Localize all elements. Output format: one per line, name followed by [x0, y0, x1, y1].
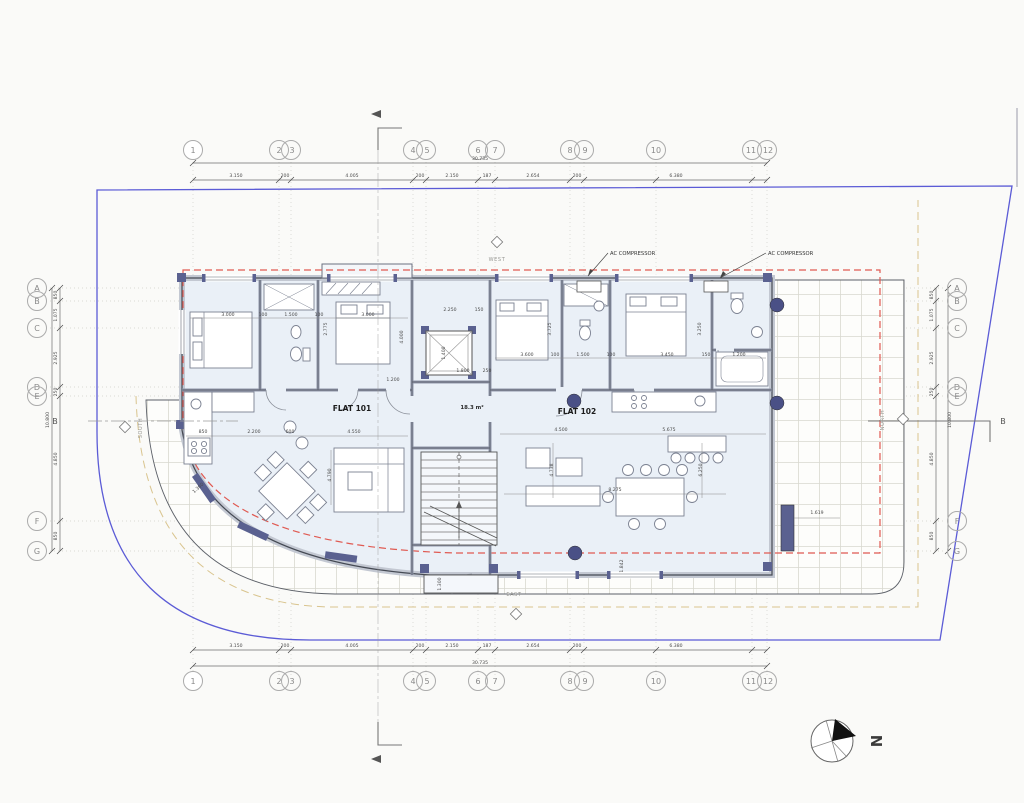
ac-compressor-unit — [704, 281, 728, 292]
dimension-value: 6.380 — [669, 173, 682, 179]
dimension-value: 3.600 — [520, 352, 533, 358]
dimension-value: 3.000 — [361, 312, 374, 318]
sofa — [334, 448, 404, 512]
dimension-value: 1.200 — [732, 352, 745, 358]
bed — [190, 312, 252, 368]
dimension-value: 100 — [259, 312, 268, 318]
grid-bubble-label: 11 — [746, 146, 756, 155]
bar-stool — [713, 453, 723, 463]
dimension-value: 5.675 — [662, 427, 675, 433]
dimension-value: 200 — [573, 643, 582, 649]
grid-bubble-label: 10 — [651, 677, 661, 686]
ac-compressor-callout: AC COMPRESSOR — [610, 251, 656, 257]
dimension-value: 2.925 — [53, 351, 59, 364]
grid-bubble: 1 — [184, 672, 203, 691]
grid-bubble-label: 2 — [276, 146, 281, 155]
dimension-value: 3.250 — [697, 322, 703, 335]
ac-compressor-callout: AC COMPRESSOR — [768, 251, 814, 257]
dimension-value: 2.250 — [443, 307, 456, 313]
dining-chair — [677, 465, 688, 476]
dimension-value: 3.150 — [229, 173, 242, 179]
dimension-value: 4.550 — [347, 429, 360, 435]
dimension-value: 4.738 — [549, 463, 555, 476]
dimension-value: 250 — [53, 388, 59, 397]
ac-compressor-unit — [577, 281, 601, 292]
dimension-value: 4.850 — [53, 452, 59, 465]
bar-stool — [685, 453, 695, 463]
kitchen-counter — [612, 392, 716, 412]
dining-chair — [641, 465, 652, 476]
dimension-value: 200 — [416, 643, 425, 649]
closet — [322, 282, 380, 295]
dimension-value: 200 — [573, 173, 582, 179]
dimension-value: 850 — [929, 291, 935, 300]
dimension-value: 4.500 — [554, 427, 567, 433]
grid-bubble-label: F — [35, 517, 40, 526]
grid-bubble-label: 4 — [410, 146, 415, 155]
north-label: NORTH — [880, 410, 886, 431]
dimension-value: 4.005 — [345, 643, 358, 649]
kitchen-sink — [191, 399, 201, 409]
grid-bubble-label: B — [34, 297, 40, 306]
dimension-value: 8.275 — [608, 487, 621, 493]
dimension-value: 6.380 — [669, 643, 682, 649]
grid-bubble-label: 3 — [289, 677, 294, 686]
dimension-value: 4.000 — [399, 330, 405, 343]
dining-chair — [623, 465, 634, 476]
deck-wall-stub — [781, 505, 794, 551]
dining-chair — [603, 492, 614, 503]
dimension-value: 1.075 — [929, 308, 935, 321]
dining-chair — [687, 492, 698, 503]
dimension-value: 2.150 — [445, 643, 458, 649]
south-label: SOUTH — [138, 418, 144, 439]
grid-bubble-label: D — [34, 383, 40, 392]
dimension-value: 200 — [281, 643, 290, 649]
grid-bubble-label: 8 — [567, 677, 572, 686]
dimension-value: 850 — [53, 532, 59, 541]
bar-stool — [671, 453, 681, 463]
section-b-label: B — [52, 417, 58, 426]
grid-bubble-label: 7 — [492, 677, 497, 686]
dimension-total: 30.735 — [472, 156, 488, 162]
kitchen-sink — [695, 396, 705, 406]
dimension-value: 850 — [53, 291, 59, 300]
dimension-value: 250 — [929, 388, 935, 397]
dimension-value: 2.925 — [929, 351, 935, 364]
dining-chair — [655, 519, 666, 530]
grid-bubble-label: 6 — [475, 677, 480, 686]
grid-bubble-label: 8 — [567, 146, 572, 155]
dimension-value: 1.842 — [619, 559, 625, 572]
grid-bubble-label: E — [954, 392, 959, 401]
west-label: WEST — [489, 257, 506, 263]
grid-bubble-label: C — [954, 324, 960, 333]
grid-bubble: 1 — [184, 141, 203, 160]
landing-area-label: 18.3 m² — [460, 404, 484, 411]
coffee-table — [348, 472, 372, 490]
dimension-value: 150 — [702, 352, 711, 358]
dining-chair — [629, 519, 640, 530]
staircase — [421, 452, 497, 546]
dimension-total: 30.735 — [472, 660, 488, 666]
entrance-lobby — [424, 575, 498, 593]
dimension-value: 1.075 — [53, 308, 59, 321]
bed — [496, 300, 548, 360]
shower — [264, 284, 314, 310]
toilet — [731, 293, 743, 314]
dimension-value: 850 — [929, 532, 935, 541]
grid-bubble-label: 6 — [475, 146, 480, 155]
dimension-value: 2.150 — [445, 173, 458, 179]
dimension-value: 1.300 — [437, 577, 443, 590]
floor-plan-drawing: 1 2 3 4 5 6 7 8 9 10 11 12 1 2 3 4 5 6 7… — [0, 0, 1024, 803]
dimension-value: 850 — [199, 429, 208, 435]
dimension-value: 1.400 — [441, 346, 447, 359]
dimension-value: 600 — [286, 429, 295, 435]
dimension-value: 1.800 — [456, 368, 469, 374]
dimension-value: 150 — [475, 307, 484, 313]
bed — [336, 302, 390, 364]
grid-bubble-label: 7 — [492, 146, 497, 155]
dimension-value: 250 — [483, 368, 492, 374]
dimension-value: 2.654 — [526, 173, 539, 179]
dimension-value: 2.654 — [526, 643, 539, 649]
dimension-value: 200 — [416, 173, 425, 179]
dimension-value: 4.790 — [327, 468, 333, 481]
grid-bubble-label: 4 — [410, 677, 415, 686]
toilet — [580, 320, 591, 340]
grid-bubble-label: 1 — [190, 146, 195, 155]
grid-bubble-label: 12 — [763, 146, 773, 155]
dimension-value: 3.000 — [221, 312, 234, 318]
dimension-value: 100 — [315, 312, 324, 318]
dimension-value: 4.850 — [929, 452, 935, 465]
grid-bubble-label: 3 — [289, 146, 294, 155]
flat-102-label: FLAT 102 — [558, 407, 597, 416]
sink — [752, 327, 763, 338]
dimension-value: 2.775 — [323, 322, 329, 335]
sink — [594, 301, 604, 311]
grid-bubble-label: 2 — [276, 677, 281, 686]
stove — [188, 438, 210, 456]
toilet — [291, 347, 311, 361]
dimension-value: 187 — [483, 643, 492, 649]
dimension-value: 1.500 — [576, 352, 589, 358]
bar-stool — [296, 437, 308, 449]
dimension-value: 100 — [551, 352, 560, 358]
grid-bubble-label: G — [954, 547, 960, 556]
grid-bubble-label: 12 — [763, 677, 773, 686]
grid-bubble-label: 9 — [582, 146, 587, 155]
grid-bubble-label: C — [34, 324, 40, 333]
grid-bubble-label: G — [34, 547, 40, 556]
sink — [291, 326, 301, 339]
grid-bubble-label: 11 — [746, 677, 756, 686]
section-b-label: B — [1000, 417, 1006, 426]
dimension-total: 10.800 — [947, 412, 953, 428]
grid-bubble-label: D — [954, 383, 960, 392]
compass-north-letter: N — [867, 735, 885, 748]
grid-bubble-label: 5 — [424, 146, 429, 155]
dimension-value: 4.005 — [345, 173, 358, 179]
grid-bubble-label: F — [955, 517, 960, 526]
dimension-value: 3.725 — [547, 322, 553, 335]
east-label: EAST — [506, 592, 522, 598]
grid-bubble-label: 1 — [190, 677, 195, 686]
dimension-value: 100 — [607, 352, 616, 358]
dimension-value: 1.200 — [386, 377, 399, 383]
bar-stool — [699, 453, 709, 463]
dimension-total: 10.800 — [45, 412, 51, 428]
dimension-value: 2.200 — [247, 429, 260, 435]
grid-bubble-label: B — [954, 297, 960, 306]
grid-bubble-label: E — [34, 392, 39, 401]
dimension-value: 1.500 — [284, 312, 297, 318]
dimension-value: 200 — [281, 173, 290, 179]
dining-chair — [659, 465, 670, 476]
flat-101-label: FLAT 101 — [333, 404, 372, 413]
grid-bubble-label: 9 — [582, 677, 587, 686]
dimension-value: 6.250 — [698, 463, 704, 476]
grid-bubble-label: 10 — [651, 146, 661, 155]
coffee-table — [556, 458, 582, 476]
dimension-value: 3.450 — [660, 352, 673, 358]
dimension-value: 187 — [483, 173, 492, 179]
armchair — [526, 448, 550, 468]
bed — [626, 294, 686, 356]
dimension-value: 3.150 — [229, 643, 242, 649]
dimension-value: 1.619 — [810, 510, 823, 516]
grid-bubble-label: 5 — [424, 677, 429, 686]
